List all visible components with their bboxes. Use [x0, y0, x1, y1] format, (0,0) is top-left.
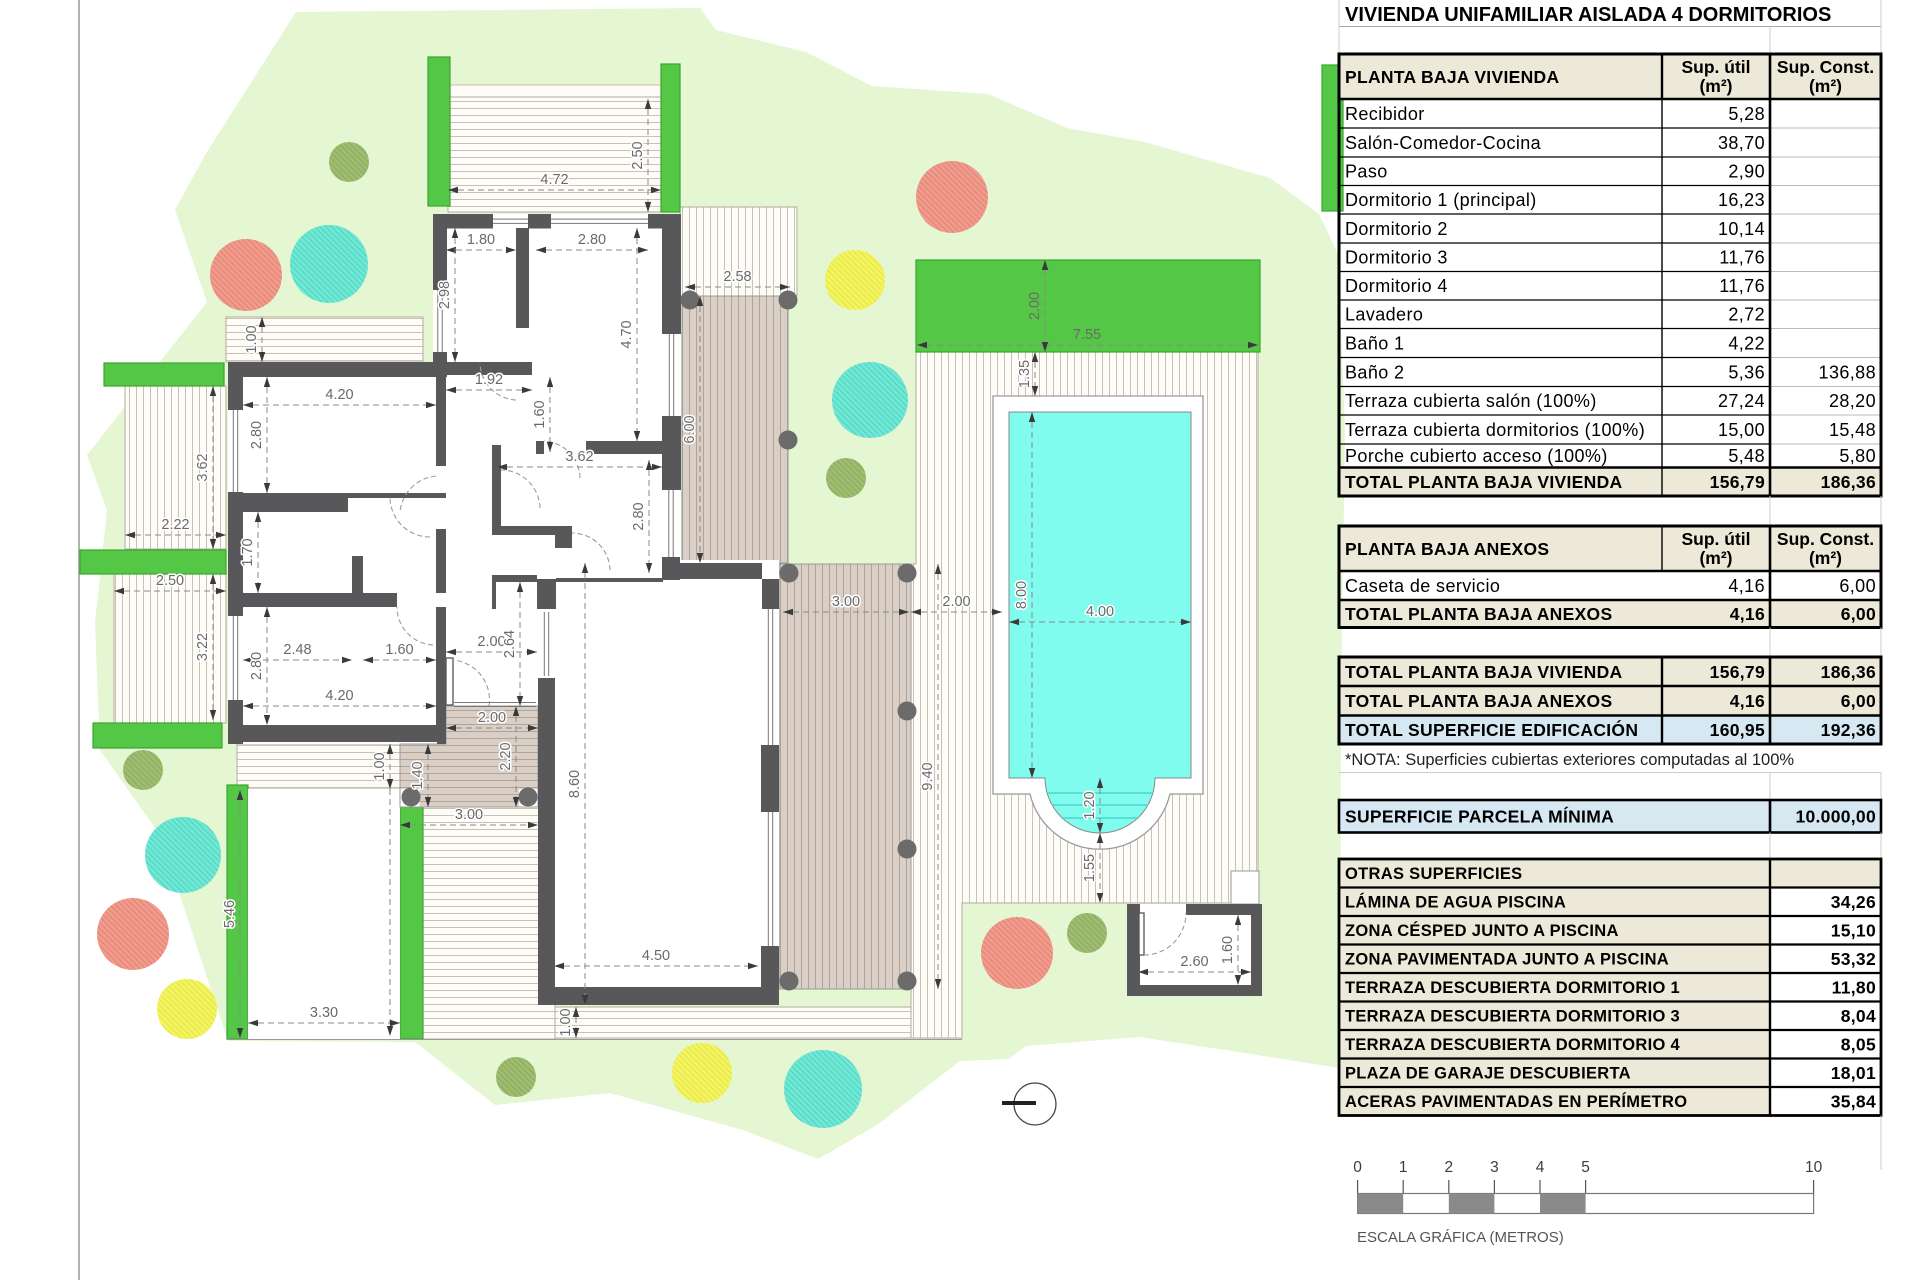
- svg-text:2,72: 2,72: [1728, 305, 1765, 325]
- svg-text:5.46: 5.46: [222, 900, 238, 928]
- svg-text:38,70: 38,70: [1718, 133, 1765, 153]
- svg-text:LÁMINA DE AGUA PISCINA: LÁMINA DE AGUA PISCINA: [1345, 893, 1566, 912]
- svg-text:156,79: 156,79: [1710, 472, 1765, 492]
- svg-text:4,16: 4,16: [1728, 576, 1765, 596]
- svg-text:3.62: 3.62: [195, 453, 211, 481]
- svg-text:4: 4: [1536, 1159, 1545, 1176]
- svg-text:Sup. útil: Sup. útil: [1681, 529, 1750, 549]
- svg-text:TOTAL PLANTA BAJA VIVIENDA: TOTAL PLANTA BAJA VIVIENDA: [1345, 472, 1623, 492]
- svg-text:Recibidor: Recibidor: [1345, 104, 1425, 124]
- svg-text:2.80: 2.80: [578, 232, 606, 248]
- svg-text:2.98: 2.98: [437, 281, 453, 309]
- svg-text:3.22: 3.22: [195, 633, 211, 661]
- svg-text:Terraza cubierta salón (100%): Terraza cubierta salón (100%): [1345, 391, 1597, 411]
- svg-text:4.72: 4.72: [540, 172, 568, 188]
- svg-text:2,90: 2,90: [1728, 162, 1765, 182]
- svg-text:4,16: 4,16: [1730, 604, 1765, 624]
- svg-text:4.20: 4.20: [325, 688, 353, 704]
- svg-text:186,36: 186,36: [1821, 662, 1876, 682]
- svg-text:9.40: 9.40: [920, 762, 936, 790]
- svg-text:4.20: 4.20: [325, 387, 353, 403]
- svg-text:10.000,00: 10.000,00: [1795, 807, 1876, 827]
- svg-text:Salón-Comedor-Cocina: Salón-Comedor-Cocina: [1345, 133, 1542, 153]
- svg-text:2.80: 2.80: [249, 421, 265, 449]
- svg-text:1.35: 1.35: [1017, 360, 1033, 388]
- svg-text:156,79: 156,79: [1710, 662, 1765, 682]
- svg-text:(m²): (m²): [1699, 76, 1732, 96]
- svg-text:8,05: 8,05: [1841, 1035, 1876, 1055]
- svg-text:16,23: 16,23: [1718, 190, 1765, 210]
- svg-text:3.30: 3.30: [310, 1005, 338, 1021]
- svg-text:1.00: 1.00: [558, 1008, 574, 1036]
- svg-text:6,00: 6,00: [1839, 576, 1876, 596]
- svg-text:Terraza cubierta dormitorios (: Terraza cubierta dormitorios (100%): [1345, 420, 1645, 440]
- svg-text:Dormitorio 3: Dormitorio 3: [1345, 248, 1448, 268]
- svg-text:8,04: 8,04: [1841, 1006, 1876, 1026]
- svg-text:136,88: 136,88: [1819, 363, 1876, 383]
- svg-text:1.60: 1.60: [1220, 936, 1236, 964]
- svg-text:4,22: 4,22: [1728, 334, 1765, 354]
- svg-text:2.60: 2.60: [1180, 954, 1208, 970]
- svg-text:Baño 1: Baño 1: [1345, 334, 1404, 354]
- svg-text:2.58: 2.58: [723, 269, 751, 285]
- svg-text:11,76: 11,76: [1719, 276, 1765, 296]
- svg-text:192,36: 192,36: [1821, 720, 1876, 740]
- svg-text:5,48: 5,48: [1728, 446, 1765, 466]
- svg-text:ACERAS PAVIMENTADAS EN PERÍMET: ACERAS PAVIMENTADAS EN PERÍMETRO: [1345, 1092, 1687, 1111]
- svg-text:1: 1: [1399, 1159, 1408, 1176]
- svg-text:2.20: 2.20: [498, 742, 514, 770]
- svg-text:2.22: 2.22: [161, 517, 189, 533]
- svg-text:11,80: 11,80: [1832, 978, 1876, 998]
- svg-text:3.62: 3.62: [565, 449, 593, 465]
- svg-text:3.00: 3.00: [832, 594, 860, 610]
- svg-text:TOTAL SUPERFICIE EDIFICACIÓN: TOTAL SUPERFICIE EDIFICACIÓN: [1345, 719, 1638, 740]
- svg-text:1.00: 1.00: [372, 752, 388, 780]
- svg-text:1.60: 1.60: [532, 400, 548, 428]
- svg-text:186,36: 186,36: [1821, 472, 1876, 492]
- svg-text:1.40: 1.40: [410, 761, 426, 789]
- svg-text:4.00: 4.00: [1086, 604, 1114, 620]
- svg-text:VIVIENDA UNIFAMILIAR AISLADA 4: VIVIENDA UNIFAMILIAR AISLADA 4 DORMITORI…: [1345, 4, 1831, 26]
- svg-text:6,00: 6,00: [1841, 691, 1876, 711]
- svg-text:2.50: 2.50: [630, 141, 646, 169]
- svg-text:TERRAZA DESCUBIERTA DORMITORIO: TERRAZA DESCUBIERTA DORMITORIO 1: [1345, 979, 1680, 997]
- svg-text:1.70: 1.70: [240, 538, 256, 566]
- svg-text:Dormitorio 1 (principal): Dormitorio 1 (principal): [1345, 190, 1537, 210]
- svg-text:10,14: 10,14: [1718, 219, 1765, 239]
- svg-text:(m²): (m²): [1809, 548, 1842, 568]
- svg-text:Dormitorio 2: Dormitorio 2: [1345, 219, 1448, 239]
- svg-text:7.55: 7.55: [1073, 327, 1101, 343]
- svg-text:TERRAZA DESCUBIERTA DORMITORIO: TERRAZA DESCUBIERTA DORMITORIO 4: [1345, 1036, 1681, 1054]
- svg-text:2.80: 2.80: [631, 502, 647, 530]
- svg-text:Sup. Const.: Sup. Const.: [1777, 57, 1874, 77]
- svg-text:4.50: 4.50: [642, 948, 670, 964]
- svg-text:TOTAL PLANTA BAJA ANEXOS: TOTAL PLANTA BAJA ANEXOS: [1345, 604, 1612, 624]
- svg-text:2: 2: [1444, 1159, 1453, 1176]
- svg-text:2.64: 2.64: [502, 630, 518, 658]
- svg-text:Baño 2: Baño 2: [1345, 363, 1404, 383]
- svg-text:TOTAL PLANTA BAJA ANEXOS: TOTAL PLANTA BAJA ANEXOS: [1345, 691, 1612, 711]
- svg-text:3.00: 3.00: [455, 807, 483, 823]
- svg-text:1.55: 1.55: [1082, 854, 1098, 882]
- svg-text:5: 5: [1581, 1159, 1590, 1176]
- svg-text:Lavadero: Lavadero: [1345, 305, 1423, 325]
- svg-text:2.48: 2.48: [283, 642, 311, 658]
- svg-text:4,16: 4,16: [1730, 691, 1765, 711]
- svg-text:2.00: 2.00: [1027, 292, 1043, 320]
- svg-text:8.00: 8.00: [1014, 581, 1030, 609]
- svg-text:TOTAL PLANTA BAJA VIVIENDA: TOTAL PLANTA BAJA VIVIENDA: [1345, 662, 1623, 682]
- svg-text:10: 10: [1805, 1159, 1823, 1176]
- svg-text:OTRAS SUPERFICIES: OTRAS SUPERFICIES: [1345, 865, 1522, 883]
- svg-text:Sup. Const.: Sup. Const.: [1777, 529, 1874, 549]
- svg-text:ZONA CÉSPED JUNTO A PISCINA: ZONA CÉSPED JUNTO A PISCINA: [1345, 921, 1619, 940]
- svg-text:2.50: 2.50: [156, 573, 184, 589]
- svg-text:53,32: 53,32: [1831, 949, 1876, 969]
- svg-text:(m²): (m²): [1699, 548, 1732, 568]
- svg-text:ZONA PAVIMENTADA JUNTO A PISCI: ZONA PAVIMENTADA JUNTO A PISCINA: [1345, 951, 1669, 969]
- svg-text:TERRAZA DESCUBIERTA DORMITORIO: TERRAZA DESCUBIERTA DORMITORIO 3: [1345, 1008, 1680, 1026]
- svg-text:11,76: 11,76: [1719, 248, 1765, 268]
- svg-text:1.92: 1.92: [475, 372, 503, 388]
- svg-text:1.00: 1.00: [244, 325, 260, 353]
- svg-text:0: 0: [1353, 1159, 1362, 1176]
- svg-text:2.00: 2.00: [942, 594, 970, 610]
- svg-text:6,00: 6,00: [1841, 604, 1876, 624]
- svg-text:5,28: 5,28: [1728, 104, 1765, 124]
- svg-text:1.80: 1.80: [467, 232, 495, 248]
- svg-text:Caseta de servicio: Caseta de servicio: [1345, 576, 1500, 596]
- svg-text:5,36: 5,36: [1728, 363, 1765, 383]
- svg-text:27,24: 27,24: [1718, 391, 1765, 411]
- svg-text:2.00: 2.00: [478, 710, 506, 726]
- svg-text:1.20: 1.20: [1082, 791, 1098, 819]
- svg-text:PLAZA DE GARAJE DESCUBIERTA: PLAZA DE GARAJE DESCUBIERTA: [1345, 1065, 1631, 1083]
- svg-text:Paso: Paso: [1345, 162, 1388, 182]
- svg-text:1.60: 1.60: [385, 642, 413, 658]
- svg-text:18,01: 18,01: [1831, 1063, 1876, 1083]
- svg-text:Sup. útil: Sup. útil: [1681, 57, 1750, 77]
- svg-text:6.00: 6.00: [682, 415, 698, 443]
- svg-text:PLANTA BAJA ANEXOS: PLANTA BAJA ANEXOS: [1345, 539, 1549, 559]
- svg-text:SUPERFICIE PARCELA MÍNIMA: SUPERFICIE PARCELA MÍNIMA: [1345, 806, 1614, 827]
- svg-text:PLANTA BAJA VIVIENDA: PLANTA BAJA VIVIENDA: [1345, 67, 1559, 87]
- svg-text:Dormitorio 4: Dormitorio 4: [1345, 276, 1448, 296]
- svg-text:4.70: 4.70: [619, 320, 635, 348]
- svg-text:15,10: 15,10: [1831, 921, 1876, 941]
- svg-text:2.80: 2.80: [249, 652, 265, 680]
- svg-text:15,00: 15,00: [1718, 420, 1765, 440]
- svg-text:5,80: 5,80: [1839, 446, 1876, 466]
- svg-text:8.60: 8.60: [567, 770, 583, 798]
- svg-text:28,20: 28,20: [1829, 391, 1876, 411]
- svg-text:160,95: 160,95: [1710, 720, 1765, 740]
- svg-text:*NOTA: Superficies cubiertas e: *NOTA: Superficies cubiertas exteriores …: [1345, 751, 1794, 769]
- svg-text:3: 3: [1490, 1159, 1499, 1176]
- svg-text:34,26: 34,26: [1831, 892, 1876, 912]
- svg-text:15,48: 15,48: [1829, 420, 1876, 440]
- svg-text:(m²): (m²): [1809, 76, 1842, 96]
- svg-text:Porche cubierto acceso (100%): Porche cubierto acceso (100%): [1345, 446, 1608, 466]
- svg-text:ESCALA GRÁFICA (METROS): ESCALA GRÁFICA (METROS): [1357, 1229, 1564, 1246]
- svg-text:35,84: 35,84: [1831, 1092, 1876, 1112]
